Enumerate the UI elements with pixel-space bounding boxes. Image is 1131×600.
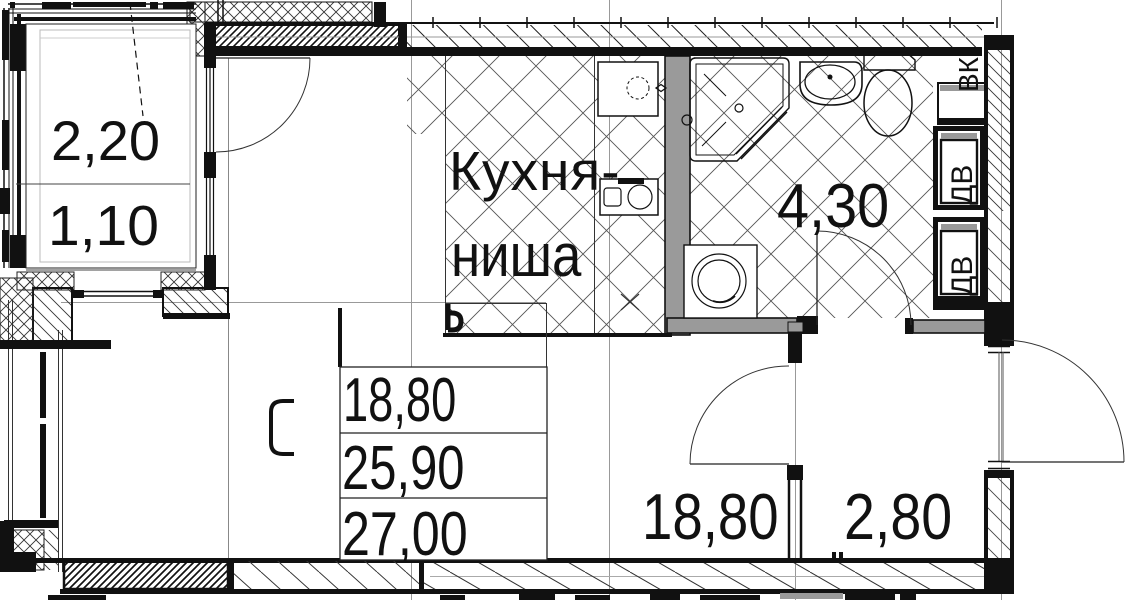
svg-text:25,90: 25,90: [342, 432, 465, 502]
svg-text:4,30: 4,30: [777, 171, 889, 240]
svg-text:2,20: 2,20: [51, 109, 160, 172]
svg-text:2,80: 2,80: [844, 480, 952, 553]
svg-text:ДВ: ДВ: [946, 256, 979, 296]
svg-text:18,80: 18,80: [343, 365, 456, 435]
svg-text:ВК: ВК: [953, 56, 984, 92]
svg-text:18,80: 18,80: [642, 481, 779, 554]
svg-text:27,00: 27,00: [342, 499, 468, 568]
svg-text:ниша: ниша: [451, 222, 582, 289]
svg-text:ДВ: ДВ: [946, 165, 979, 205]
svg-text:1,10: 1,10: [48, 194, 159, 258]
svg-text:Кухня-: Кухня-: [449, 140, 621, 202]
